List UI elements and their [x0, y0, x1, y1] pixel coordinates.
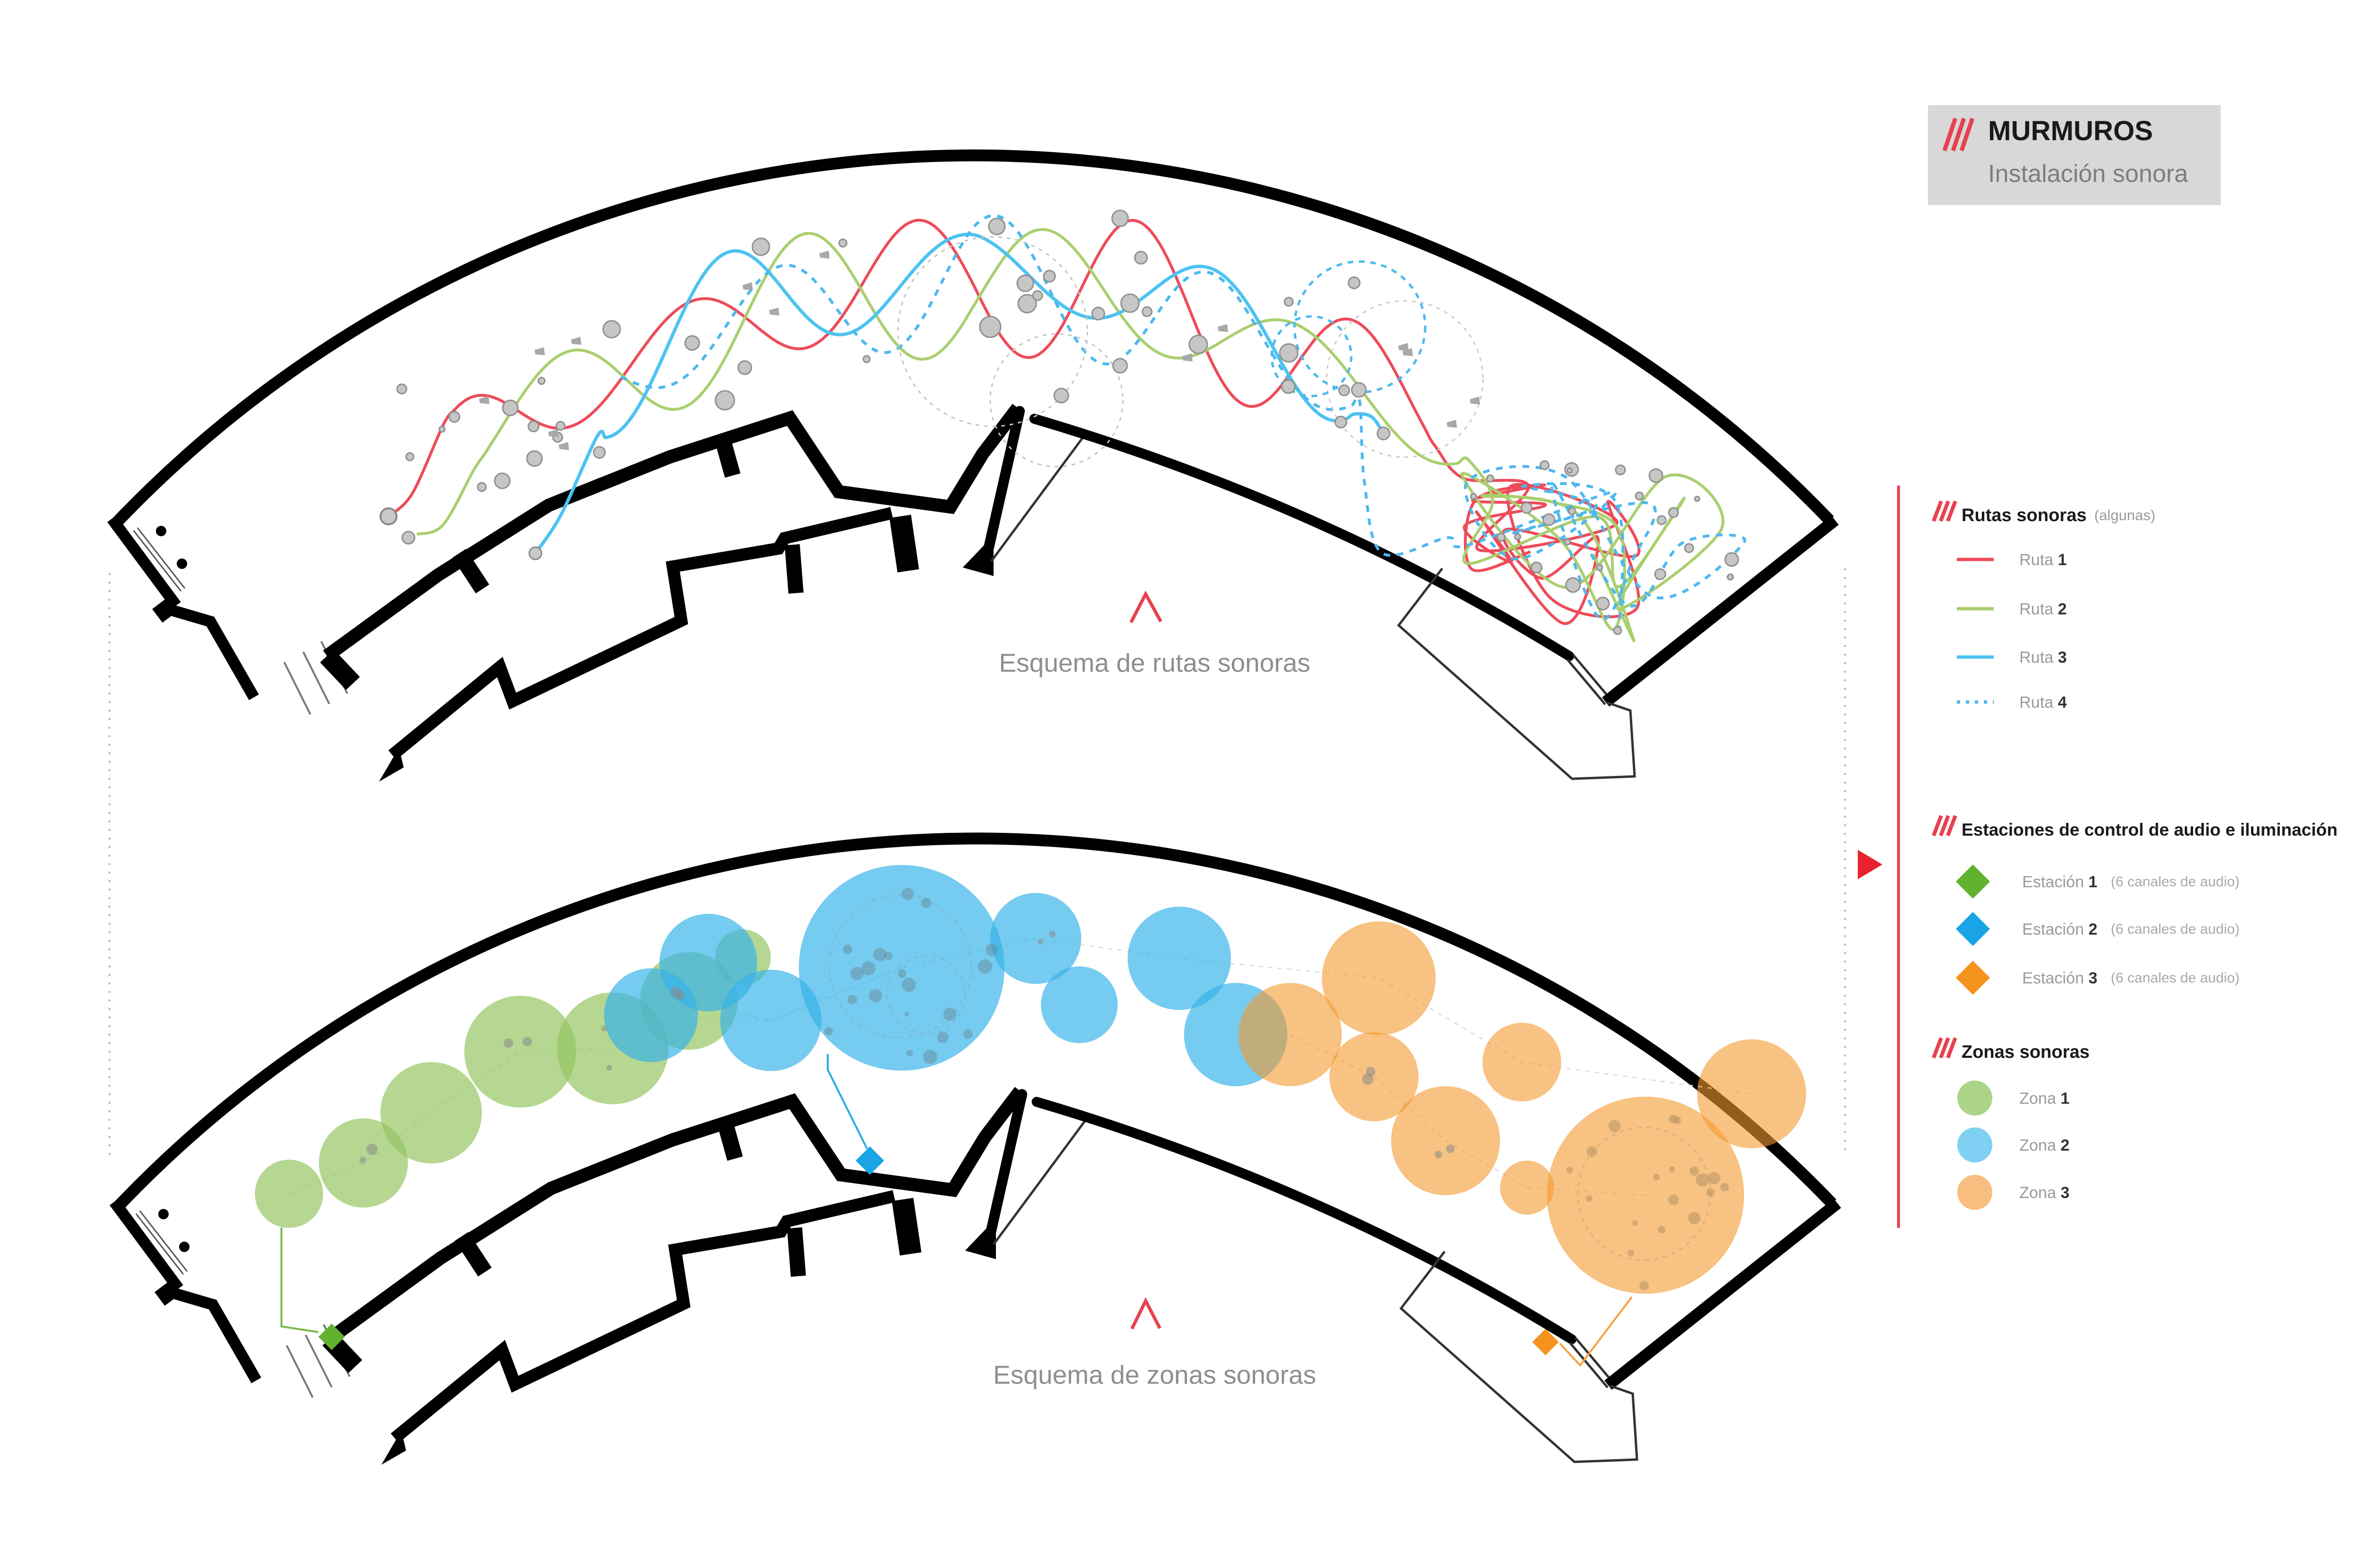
svg-text:Ruta 4: Ruta 4	[2019, 694, 2067, 712]
svg-text:Zona 3: Zona 3	[2019, 1184, 2070, 1202]
svg-text:Estación 2: Estación 2	[2022, 920, 2098, 938]
svg-text:Estación 3: Estación 3	[2022, 969, 2098, 987]
svg-text:Esquema de zonas sonoras: Esquema de zonas sonoras	[993, 1360, 1316, 1389]
svg-text:(6 canales de audio): (6 canales de audio)	[2111, 874, 2240, 890]
svg-text:Ruta 2: Ruta 2	[2019, 600, 2067, 618]
svg-text:(6 canales de audio): (6 canales de audio)	[2111, 921, 2240, 937]
svg-text:(6 canales de audio): (6 canales de audio)	[2111, 970, 2240, 986]
svg-text:MURMUROS: MURMUROS	[1988, 116, 2153, 146]
svg-text:Zona 2: Zona 2	[2019, 1136, 2070, 1154]
svg-text:Zona 1: Zona 1	[2019, 1090, 2070, 1108]
svg-text:Instalación sonora: Instalación sonora	[1988, 160, 2188, 188]
svg-text:Rutas sonoras: Rutas sonoras	[1962, 505, 2087, 525]
svg-text:Esquema de rutas sonoras: Esquema de rutas sonoras	[999, 648, 1310, 677]
svg-text:Estación 1: Estación 1	[2022, 873, 2098, 891]
svg-text:Zonas sonoras: Zonas sonoras	[1962, 1042, 2089, 1062]
svg-text:(algunas): (algunas)	[2094, 507, 2155, 523]
svg-text:Ruta 3: Ruta 3	[2019, 649, 2067, 667]
svg-text:Estaciones de control de audio: Estaciones de control de audio e ilumina…	[1962, 820, 2338, 839]
svg-text:Ruta 1: Ruta 1	[2019, 551, 2067, 569]
